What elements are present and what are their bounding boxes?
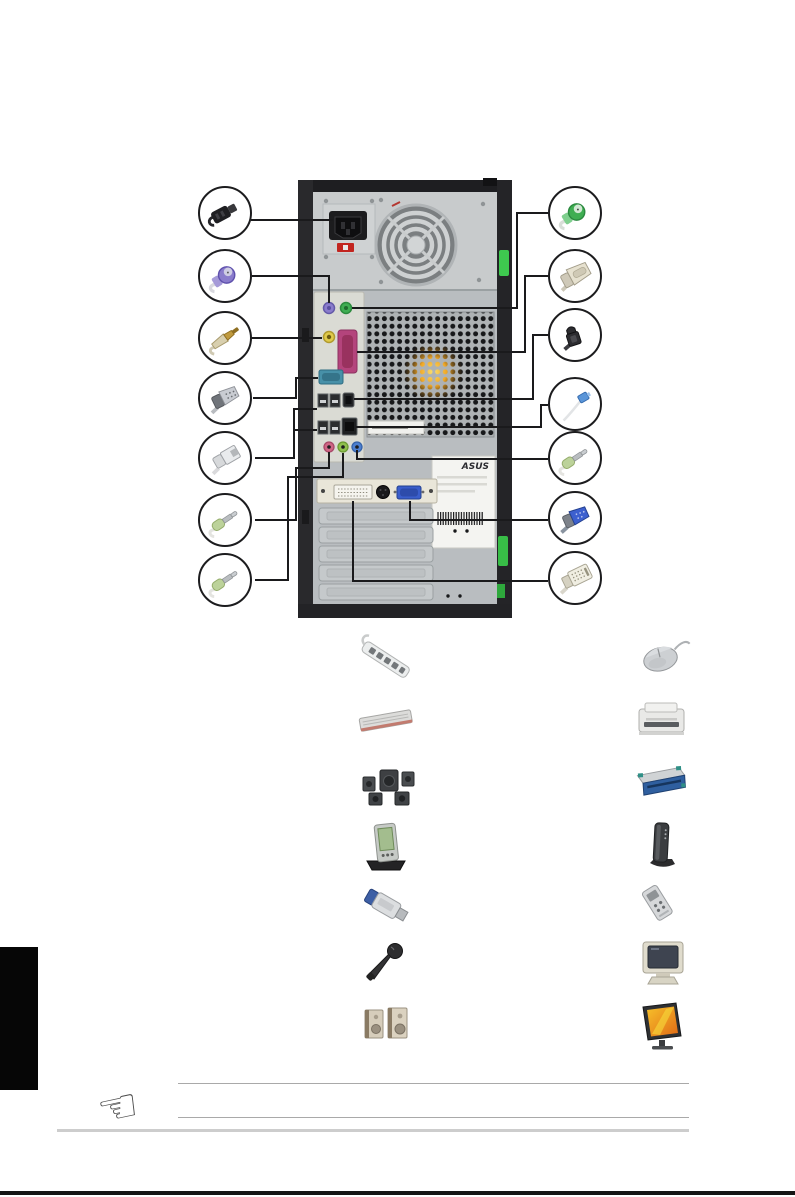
spdif-coaxial-plug-icon (203, 316, 247, 360)
callout-audio-plug-linein (548, 431, 602, 485)
parallel-port (338, 330, 357, 373)
crt-monitor-icon (628, 934, 698, 990)
ps2-keyboard-connector-icon (203, 254, 247, 298)
chapter-side-tab (0, 947, 38, 1090)
stereo-speakers-icon (350, 995, 420, 1051)
lan-port (342, 418, 357, 435)
footer-separator-line (57, 1129, 689, 1132)
callout-parallel-cable (548, 249, 602, 303)
external-drive-icon (625, 754, 695, 810)
audio-minijack-plug-icon (553, 436, 597, 480)
manual-page: ASUS (0, 0, 795, 1197)
power-cord-plug-icon (203, 191, 247, 235)
side-panel-latch (498, 536, 508, 566)
ieee1394-port (343, 393, 354, 407)
page-bottom-edge (0, 1191, 795, 1195)
parallel-db25-connector-icon (553, 254, 597, 298)
note-rule-line (178, 1117, 689, 1118)
ps2-mouse-connector-icon (553, 191, 597, 235)
keyboard-icon (351, 694, 421, 750)
psu-fan-grille (376, 202, 456, 285)
callout-vga-cable (548, 491, 602, 545)
callout-usb-cable (198, 431, 252, 485)
printer-icon (626, 692, 696, 748)
dvi-port (334, 485, 372, 499)
callout-dvi-cable (548, 551, 602, 605)
dvi-connector-icon (553, 556, 597, 600)
audio-minijack-plug-icon (203, 558, 247, 602)
callout-audio-plug-lineout (198, 553, 252, 607)
vga-connector-icon (553, 496, 597, 540)
modem-icon (626, 816, 696, 872)
mouse-icon (626, 629, 696, 685)
surround-speaker-set-icon (353, 757, 423, 813)
serial-db9-connector-icon (203, 376, 247, 420)
lan-rj45-plug-icon (553, 382, 597, 426)
barcode (437, 512, 483, 525)
graphics-card-bracket (317, 479, 437, 503)
callout-spdif-cable (198, 311, 252, 365)
asus-service-label: ASUS (432, 456, 495, 548)
usb-plug-icon (203, 436, 247, 480)
chassis-vent-grid (367, 312, 494, 437)
callout-audio-plug-mic (198, 493, 252, 547)
callout-ps2-keyboard (198, 249, 252, 303)
note-rule-line (178, 1083, 689, 1084)
expansion-slot-covers (319, 508, 433, 600)
microphone-icon (350, 936, 420, 992)
voltage-selector-switch (337, 243, 354, 252)
lcd-monitor-icon (626, 998, 696, 1054)
power-supply-section (313, 192, 497, 291)
system-tower-rear-view: ASUS (297, 178, 513, 620)
power-strip-icon (351, 633, 421, 689)
callout-ps2-mouse (548, 186, 602, 240)
side-panel-latch (499, 250, 509, 276)
ac-power-inlet (329, 211, 367, 240)
vga-port (394, 486, 425, 499)
audio-minijack-plug-icon (203, 498, 247, 542)
ieee1394-plug-icon (553, 313, 597, 357)
callout-ieee1394-cable (548, 308, 602, 362)
asus-logo: ASUS (461, 462, 489, 472)
callout-lan-cable (548, 377, 602, 431)
s-video-port (377, 486, 390, 499)
io-shield (314, 292, 364, 462)
portable-camera-device-icon (623, 875, 693, 931)
callout-power-cord (198, 186, 252, 240)
pda-with-cradle-icon (351, 818, 421, 874)
callout-serial-cable (198, 371, 252, 425)
serial-port (319, 370, 343, 384)
usb-flash-drive-icon (350, 878, 420, 934)
